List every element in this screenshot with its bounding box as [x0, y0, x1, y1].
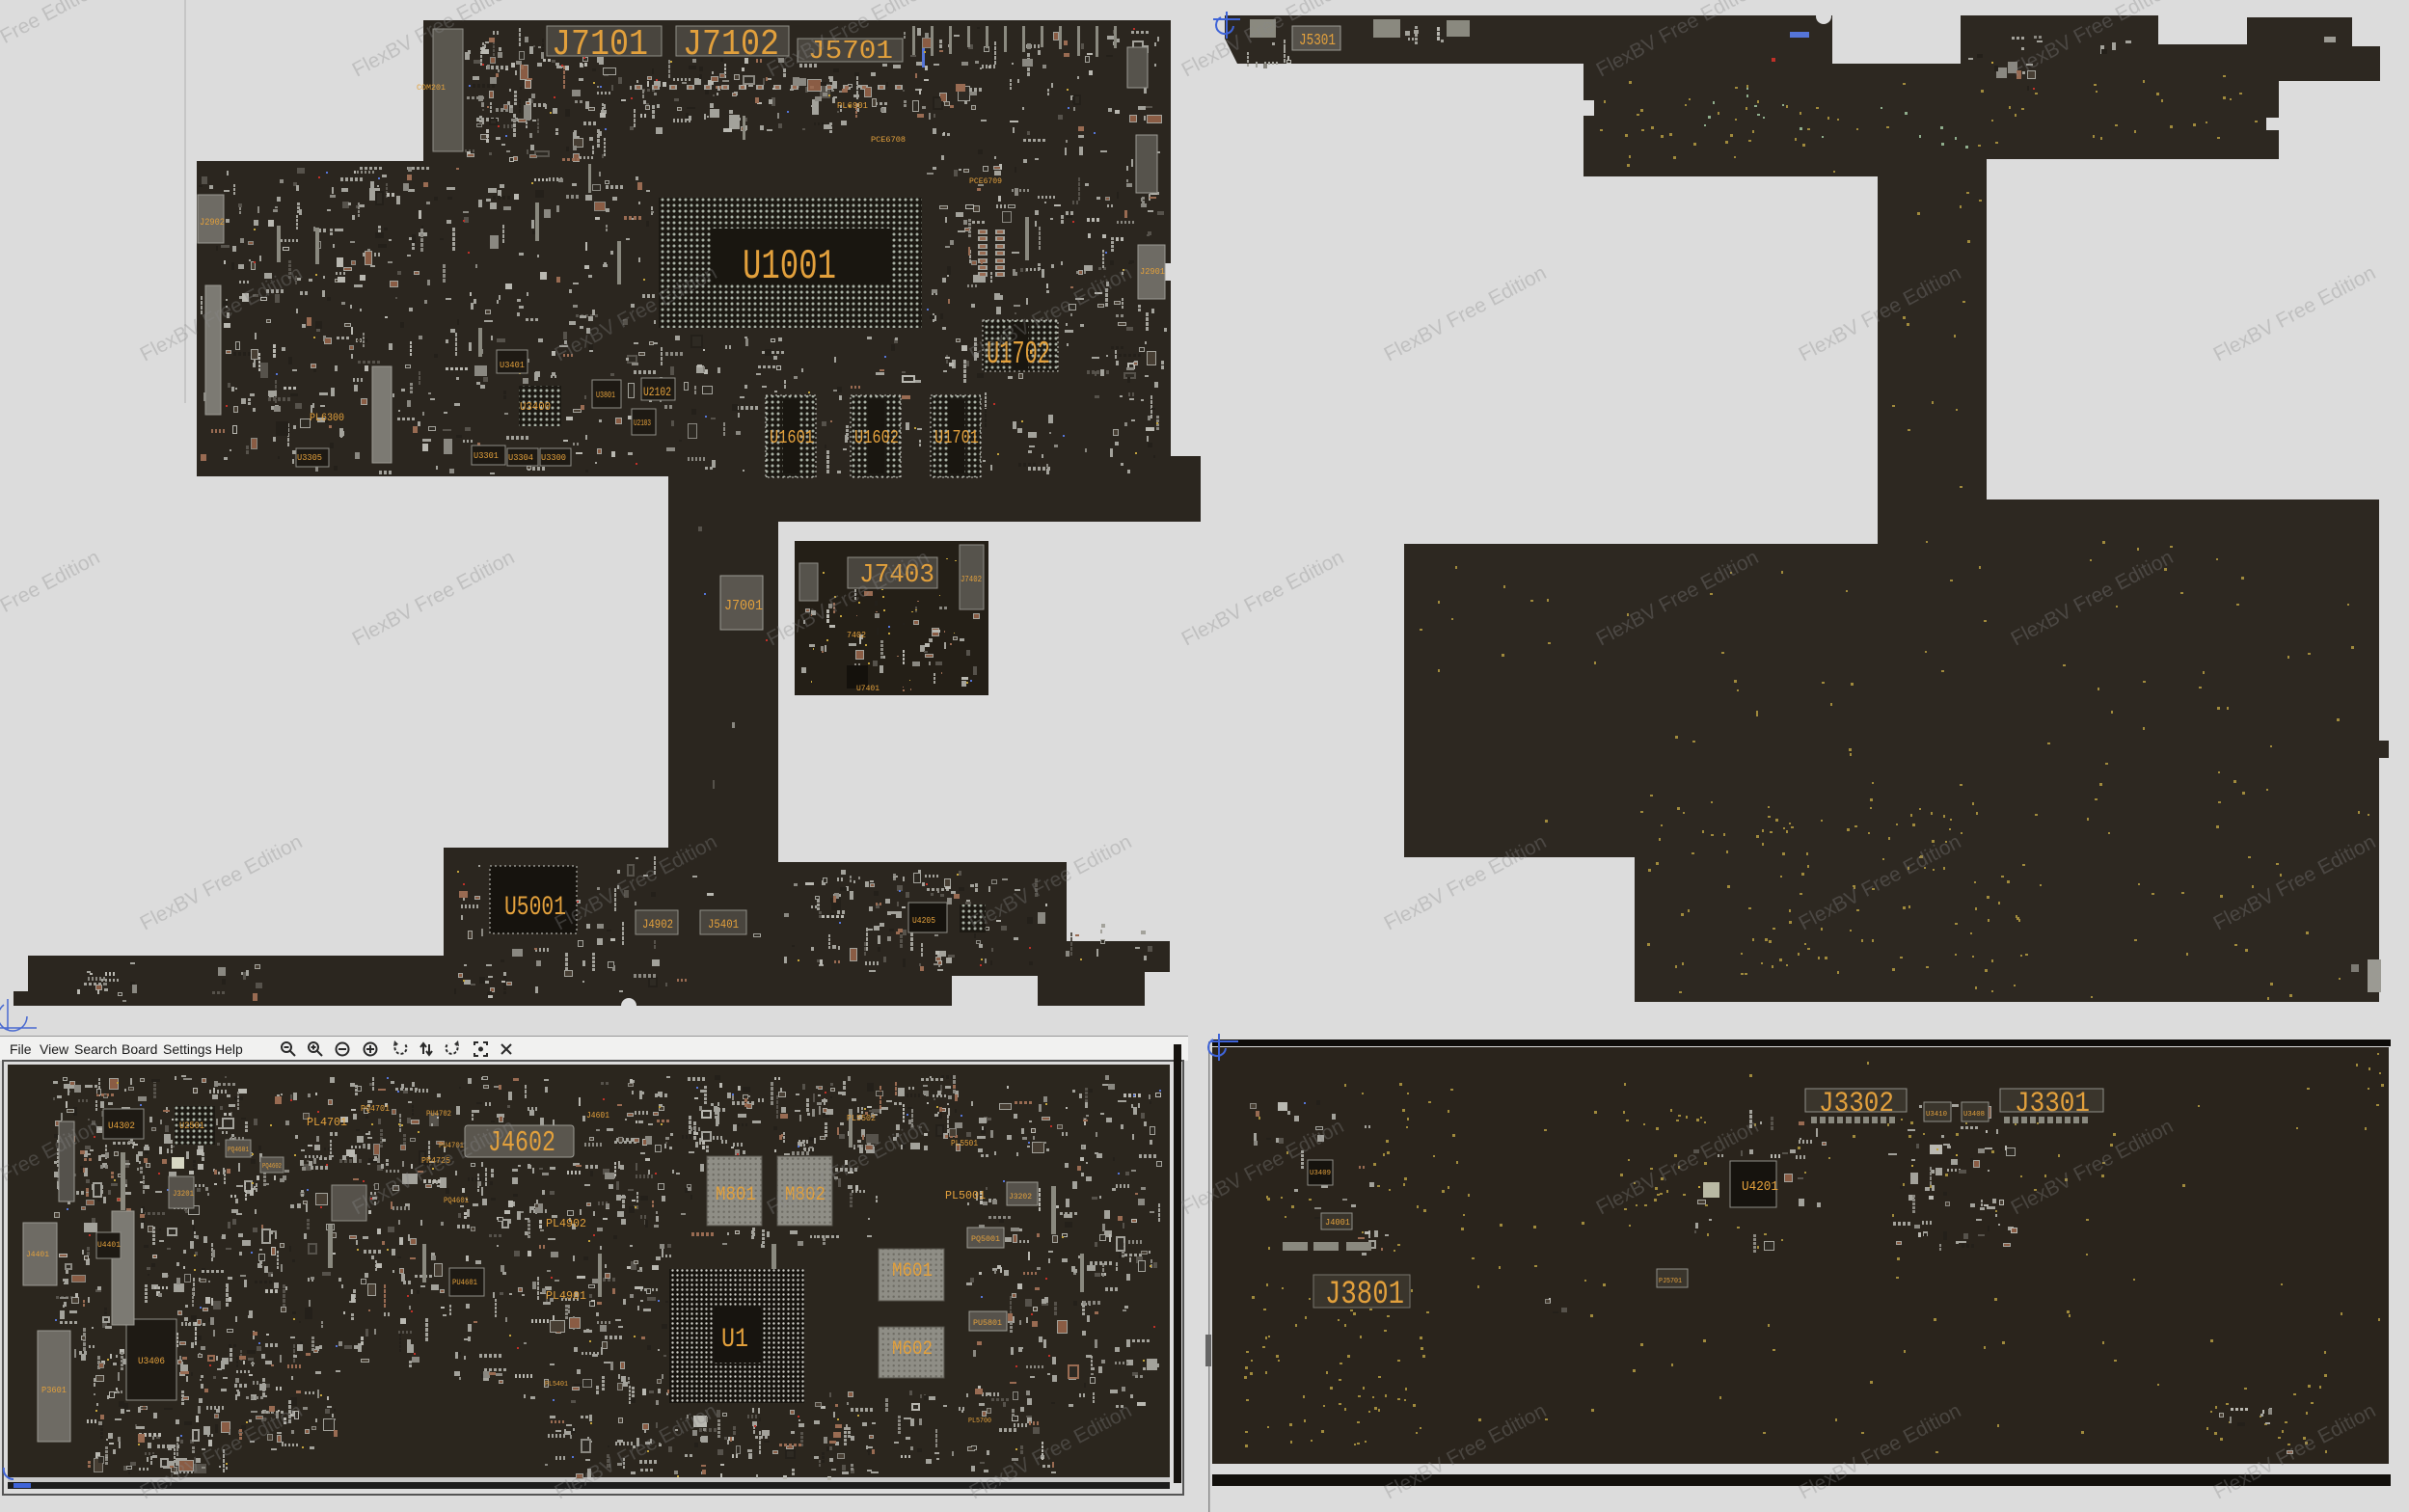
svg-text:PU5801: PU5801: [973, 1319, 1002, 1328]
svg-text:PU4601: PU4601: [452, 1279, 477, 1287]
svg-text:J2901: J2901: [1140, 267, 1165, 277]
svg-text:U4201: U4201: [1742, 1179, 1778, 1195]
svg-text:U7401: U7401: [856, 685, 880, 693]
svg-text:Settings: Settings: [163, 1041, 212, 1057]
svg-text:M601: M601: [892, 1260, 933, 1282]
svg-text:J5401: J5401: [708, 917, 739, 931]
svg-text:PCE6708: PCE6708: [871, 136, 906, 145]
svg-text:U2102: U2102: [643, 385, 671, 399]
svg-text:Search: Search: [74, 1041, 117, 1057]
svg-text:PL5501: PL5501: [951, 1139, 978, 1148]
svg-text:M602: M602: [892, 1338, 933, 1361]
svg-text:PQ4701: PQ4701: [361, 1104, 390, 1114]
svg-text:J3202: J3202: [1009, 1193, 1032, 1201]
svg-text:J7001: J7001: [724, 598, 763, 614]
svg-text:PL5700: PL5700: [968, 1417, 991, 1425]
svg-text:PL4901: PL4901: [546, 1289, 586, 1303]
svg-text:J4601: J4601: [586, 1111, 609, 1120]
svg-text:PQ4601: PQ4601: [228, 1147, 249, 1154]
svg-text:U3400: U3400: [520, 400, 551, 414]
svg-text:U3408: U3408: [1963, 1111, 1985, 1119]
svg-text:7402: 7402: [847, 631, 866, 640]
svg-text:PQ4601: PQ4601: [444, 1197, 469, 1205]
svg-text:J3301: J3301: [2015, 1088, 2090, 1120]
svg-text:U1001: U1001: [743, 243, 836, 291]
svg-text:U1: U1: [721, 1325, 748, 1355]
svg-text:U4205: U4205: [912, 916, 935, 926]
svg-text:U2103: U2103: [634, 418, 651, 428]
svg-text:View: View: [40, 1041, 69, 1057]
svg-text:J5301: J5301: [1299, 32, 1336, 50]
svg-text:J3302: J3302: [1819, 1088, 1894, 1120]
svg-text:J4401: J4401: [26, 1251, 49, 1259]
svg-text:PJ5701: PJ5701: [1659, 1278, 1682, 1285]
svg-text:File: File: [10, 1041, 32, 1057]
svg-text:U4401: U4401: [97, 1241, 121, 1250]
svg-text:P3601: P3601: [41, 1386, 67, 1395]
svg-text:PL6901: PL6901: [837, 101, 868, 111]
svg-text:U3409: U3409: [1310, 1170, 1331, 1177]
svg-text:J7402: J7402: [961, 575, 982, 584]
svg-text:U3301: U3301: [474, 451, 499, 461]
svg-text:PCE6709: PCE6709: [969, 177, 1002, 186]
svg-text:PL5401: PL5401: [545, 1381, 568, 1389]
svg-text:U2501: U2501: [179, 1121, 204, 1132]
svg-text:PL4902: PL4902: [546, 1217, 586, 1230]
svg-text:U3304: U3304: [508, 453, 533, 463]
svg-text:U3401: U3401: [500, 361, 525, 370]
svg-text:PL5502: PL5502: [847, 1114, 876, 1123]
svg-text:COM201: COM201: [417, 84, 446, 93]
svg-text:U3305: U3305: [297, 453, 322, 463]
svg-text:J3801: J3801: [1325, 1277, 1404, 1313]
svg-text:Help: Help: [215, 1041, 243, 1057]
svg-text:J4902: J4902: [642, 917, 673, 931]
svg-text:U1601: U1601: [770, 427, 814, 448]
svg-text:J4001: J4001: [1325, 1218, 1350, 1228]
svg-text:PQ5001: PQ5001: [971, 1235, 1000, 1244]
svg-text:U3300: U3300: [541, 453, 566, 463]
svg-text:J7101: J7101: [552, 24, 648, 66]
svg-text:J7102: J7102: [683, 24, 779, 66]
svg-text:J2902: J2902: [200, 218, 225, 229]
svg-text:Board: Board: [122, 1041, 157, 1057]
svg-text:M801: M801: [716, 1184, 756, 1206]
svg-text:PU4702: PU4702: [426, 1110, 451, 1119]
svg-text:U3406: U3406: [138, 1357, 165, 1367]
svg-text:PL5001: PL5001: [945, 1189, 986, 1202]
svg-text:PL6300: PL6300: [310, 413, 344, 424]
svg-text:PQ4602: PQ4602: [262, 1163, 282, 1171]
svg-text:U1701: U1701: [934, 427, 979, 448]
svg-text:PL4701: PL4701: [307, 1116, 347, 1129]
svg-text:U1602: U1602: [854, 427, 899, 448]
svg-text:U3410: U3410: [1926, 1111, 1947, 1119]
svg-text:U4302: U4302: [108, 1121, 135, 1132]
svg-text:U3801: U3801: [596, 391, 615, 400]
svg-text:J3201: J3201: [173, 1190, 194, 1199]
